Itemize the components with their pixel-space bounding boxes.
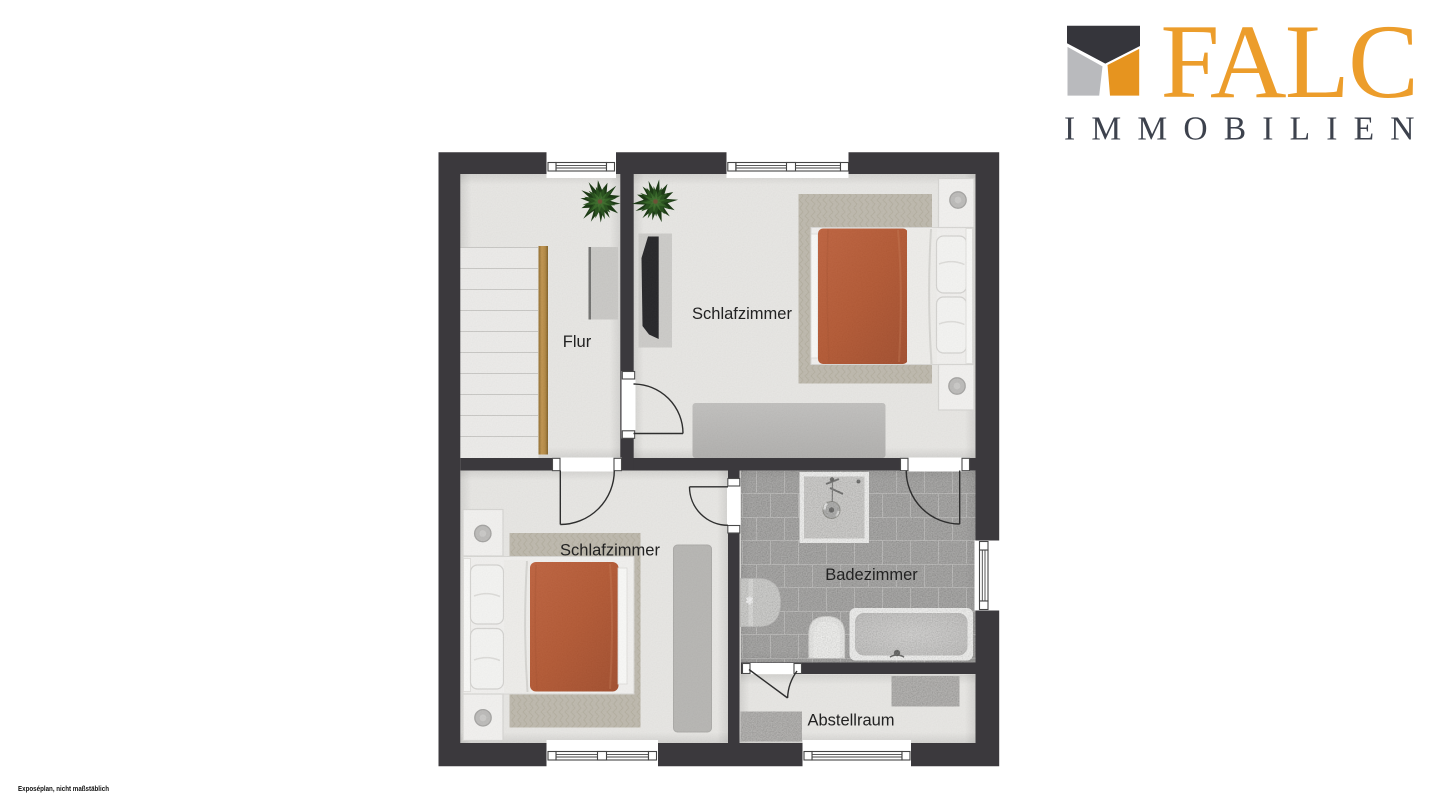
svg-text:FALC: FALC bbox=[1161, 3, 1418, 120]
svg-text:Schlafzimmer: Schlafzimmer bbox=[692, 305, 792, 323]
svg-text:Exposéplan, nicht maßstäblich: Exposéplan, nicht maßstäblich bbox=[18, 784, 109, 793]
svg-text:Schlafzimmer: Schlafzimmer bbox=[560, 542, 660, 560]
svg-text:Abstellraum: Abstellraum bbox=[807, 712, 894, 730]
svg-text:Flur: Flur bbox=[563, 333, 592, 351]
svg-text:IMMOBILIEN: IMMOBILIEN bbox=[1064, 111, 1431, 148]
svg-text:Badezimmer: Badezimmer bbox=[825, 566, 918, 584]
